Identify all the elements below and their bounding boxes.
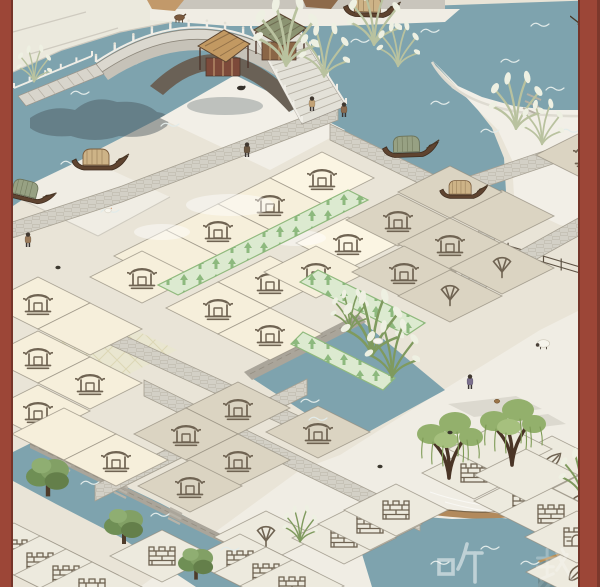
game-viewport xyxy=(0,0,600,587)
scroll-frame-left xyxy=(0,0,13,587)
rock xyxy=(55,266,60,270)
rock xyxy=(447,431,452,435)
map-scene xyxy=(0,0,600,587)
scroll-frame-right xyxy=(578,0,600,587)
chick[interactable] xyxy=(494,399,500,403)
rock xyxy=(377,465,382,469)
chicken[interactable] xyxy=(105,208,112,213)
